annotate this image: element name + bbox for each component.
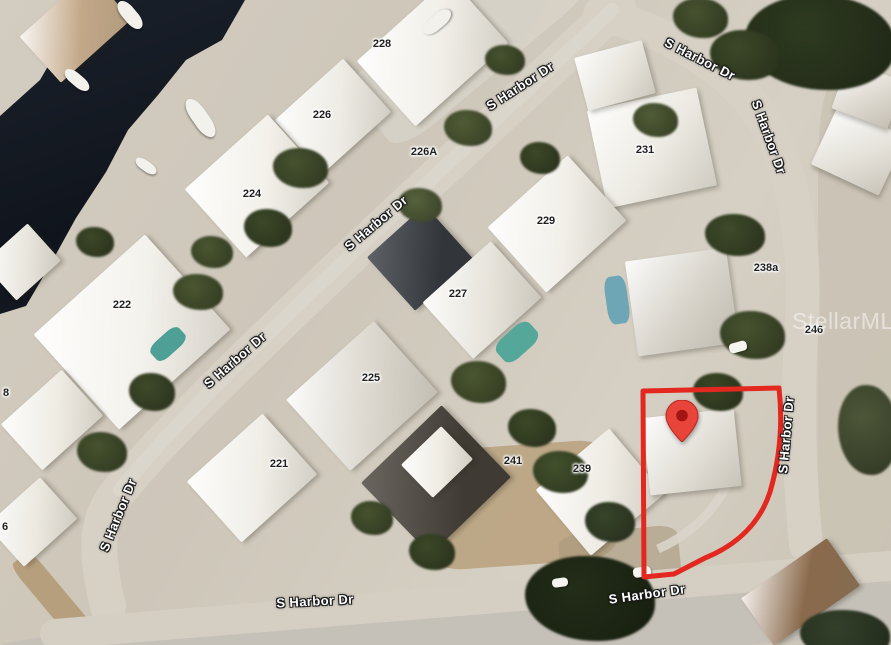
address-label-8: 8 [3, 387, 9, 399]
address-label-226: 226 [313, 109, 331, 121]
satellite-map[interactable]: S Harbor DrS Harbor DrS Harbor DrS Harbo… [0, 0, 891, 645]
address-labels: 228226226A224231229222227238a24622522124… [0, 0, 891, 645]
address-label-6: 6 [2, 521, 8, 533]
address-label-225: 225 [362, 372, 380, 384]
address-label-229: 229 [537, 215, 555, 227]
address-label-239: 239 [573, 463, 591, 475]
address-label-221: 221 [270, 458, 288, 470]
address-label-227: 227 [449, 288, 467, 300]
mls-watermark: StellarMLS [792, 308, 891, 335]
address-label-231: 231 [636, 144, 654, 156]
address-label-226A: 226A [411, 146, 437, 158]
address-label-238a: 238a [754, 262, 778, 274]
address-label-222: 222 [113, 299, 131, 311]
address-label-224: 224 [243, 188, 261, 200]
address-label-228: 228 [373, 38, 391, 50]
address-label-241: 241 [504, 455, 522, 467]
